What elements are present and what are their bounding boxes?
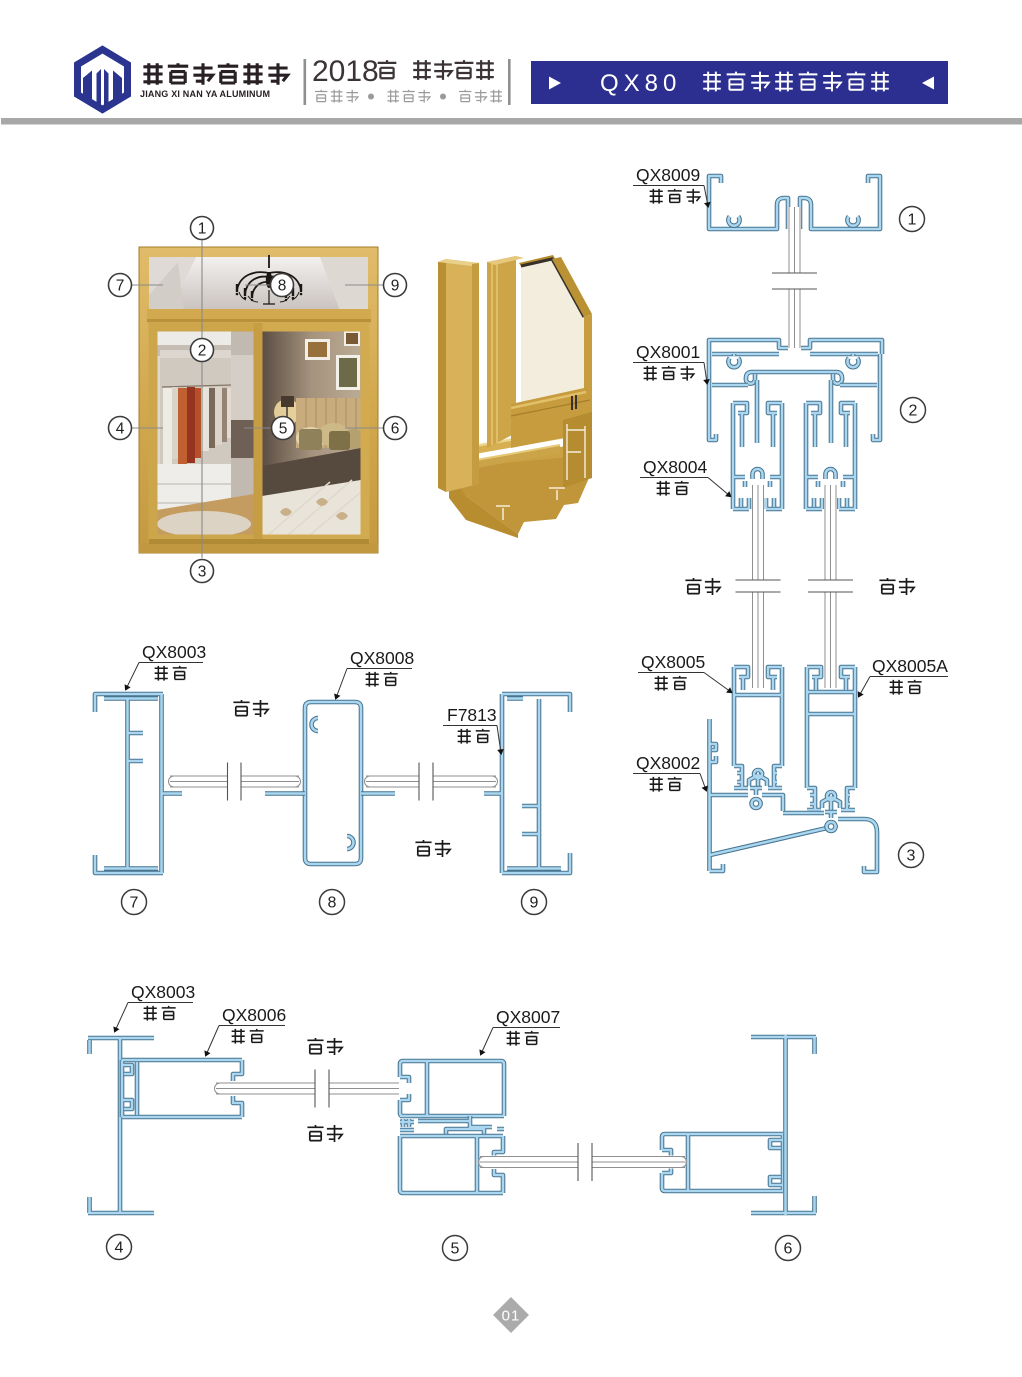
svg-text:QX8002: QX8002: [636, 753, 700, 773]
svg-text:7: 7: [130, 895, 139, 912]
svg-text:2: 2: [909, 403, 918, 420]
svg-text:2018: 2018: [312, 55, 379, 88]
svg-text:8: 8: [328, 895, 337, 912]
svg-text:9: 9: [391, 277, 400, 294]
svg-text:QX8008: QX8008: [350, 648, 414, 668]
svg-text:5: 5: [279, 420, 288, 437]
svg-text:QX8005: QX8005: [641, 652, 705, 672]
svg-text:7: 7: [116, 277, 125, 294]
svg-text:QX8009: QX8009: [636, 165, 700, 185]
svg-text:8: 8: [278, 277, 287, 294]
svg-text:3: 3: [907, 848, 916, 865]
svg-text:QX8001: QX8001: [636, 342, 700, 362]
svg-text:JIANG XI NAN YA ALUMINUM: JIANG XI NAN YA ALUMINUM: [140, 89, 270, 99]
svg-text:QX80: QX80: [600, 70, 681, 97]
svg-text:9: 9: [530, 895, 539, 912]
svg-text:2: 2: [198, 342, 207, 359]
svg-text:4: 4: [115, 1240, 124, 1257]
svg-text:1: 1: [908, 212, 917, 229]
svg-text:QX8005A: QX8005A: [872, 656, 948, 676]
svg-text:QX8006: QX8006: [222, 1005, 286, 1025]
svg-text:QX8003: QX8003: [142, 642, 206, 662]
svg-text:6: 6: [784, 1241, 793, 1258]
svg-text:01: 01: [502, 1308, 521, 1325]
svg-text:3: 3: [198, 563, 207, 580]
svg-text:F7813: F7813: [447, 705, 497, 725]
svg-text:5: 5: [451, 1241, 460, 1258]
svg-text:QX8003: QX8003: [131, 982, 195, 1002]
svg-text:QX8004: QX8004: [643, 457, 707, 477]
svg-text:QX8007: QX8007: [496, 1007, 560, 1027]
svg-text:4: 4: [116, 420, 125, 437]
svg-text:6: 6: [391, 420, 400, 437]
svg-text:1: 1: [198, 220, 207, 237]
